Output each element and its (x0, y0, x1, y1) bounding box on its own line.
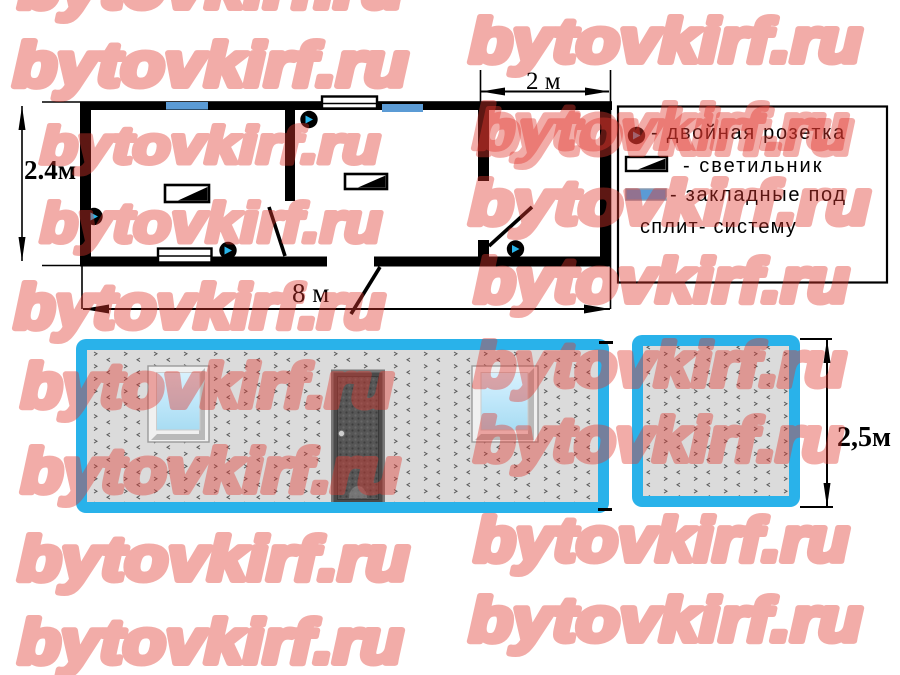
svg-text:bytovkirf.ru: bytovkirf.ru (13, 31, 408, 100)
svg-text:bytovkirf.ru: bytovkirf.ru (40, 191, 382, 254)
svg-text:bytovkirf.ru: bytovkirf.ru (478, 99, 853, 168)
svg-text:bytovkirf.ru: bytovkirf.ru (469, 586, 862, 655)
svg-text:bytovkirf.ru: bytovkirf.ru (469, 7, 862, 76)
svg-text:2,5м: 2,5м (837, 422, 891, 453)
svg-text:bytovkirf.ru: bytovkirf.ru (474, 506, 849, 575)
svg-text:bytovkirf.ru: bytovkirf.ru (18, 0, 404, 22)
svg-text:bytovkirf.ru: bytovkirf.ru (14, 273, 385, 342)
svg-text:bytovkirf.ru: bytovkirf.ru (474, 331, 846, 400)
svg-text:bytovkirf.ru: bytovkirf.ru (469, 169, 870, 238)
svg-text:bytovkirf.ru: bytovkirf.ru (18, 525, 409, 594)
svg-text:bytovkirf.ru: bytovkirf.ru (474, 406, 843, 475)
svg-text:bytovkirf.ru: bytovkirf.ru (21, 437, 400, 506)
svg-text:bytovkirf.ru: bytovkirf.ru (18, 608, 403, 675)
svg-text:bytovkirf.ru: bytovkirf.ru (21, 352, 393, 421)
svg-text:bytovkirf.ru: bytovkirf.ru (474, 247, 849, 316)
svg-text:bytovkirf.ru: bytovkirf.ru (40, 117, 380, 175)
